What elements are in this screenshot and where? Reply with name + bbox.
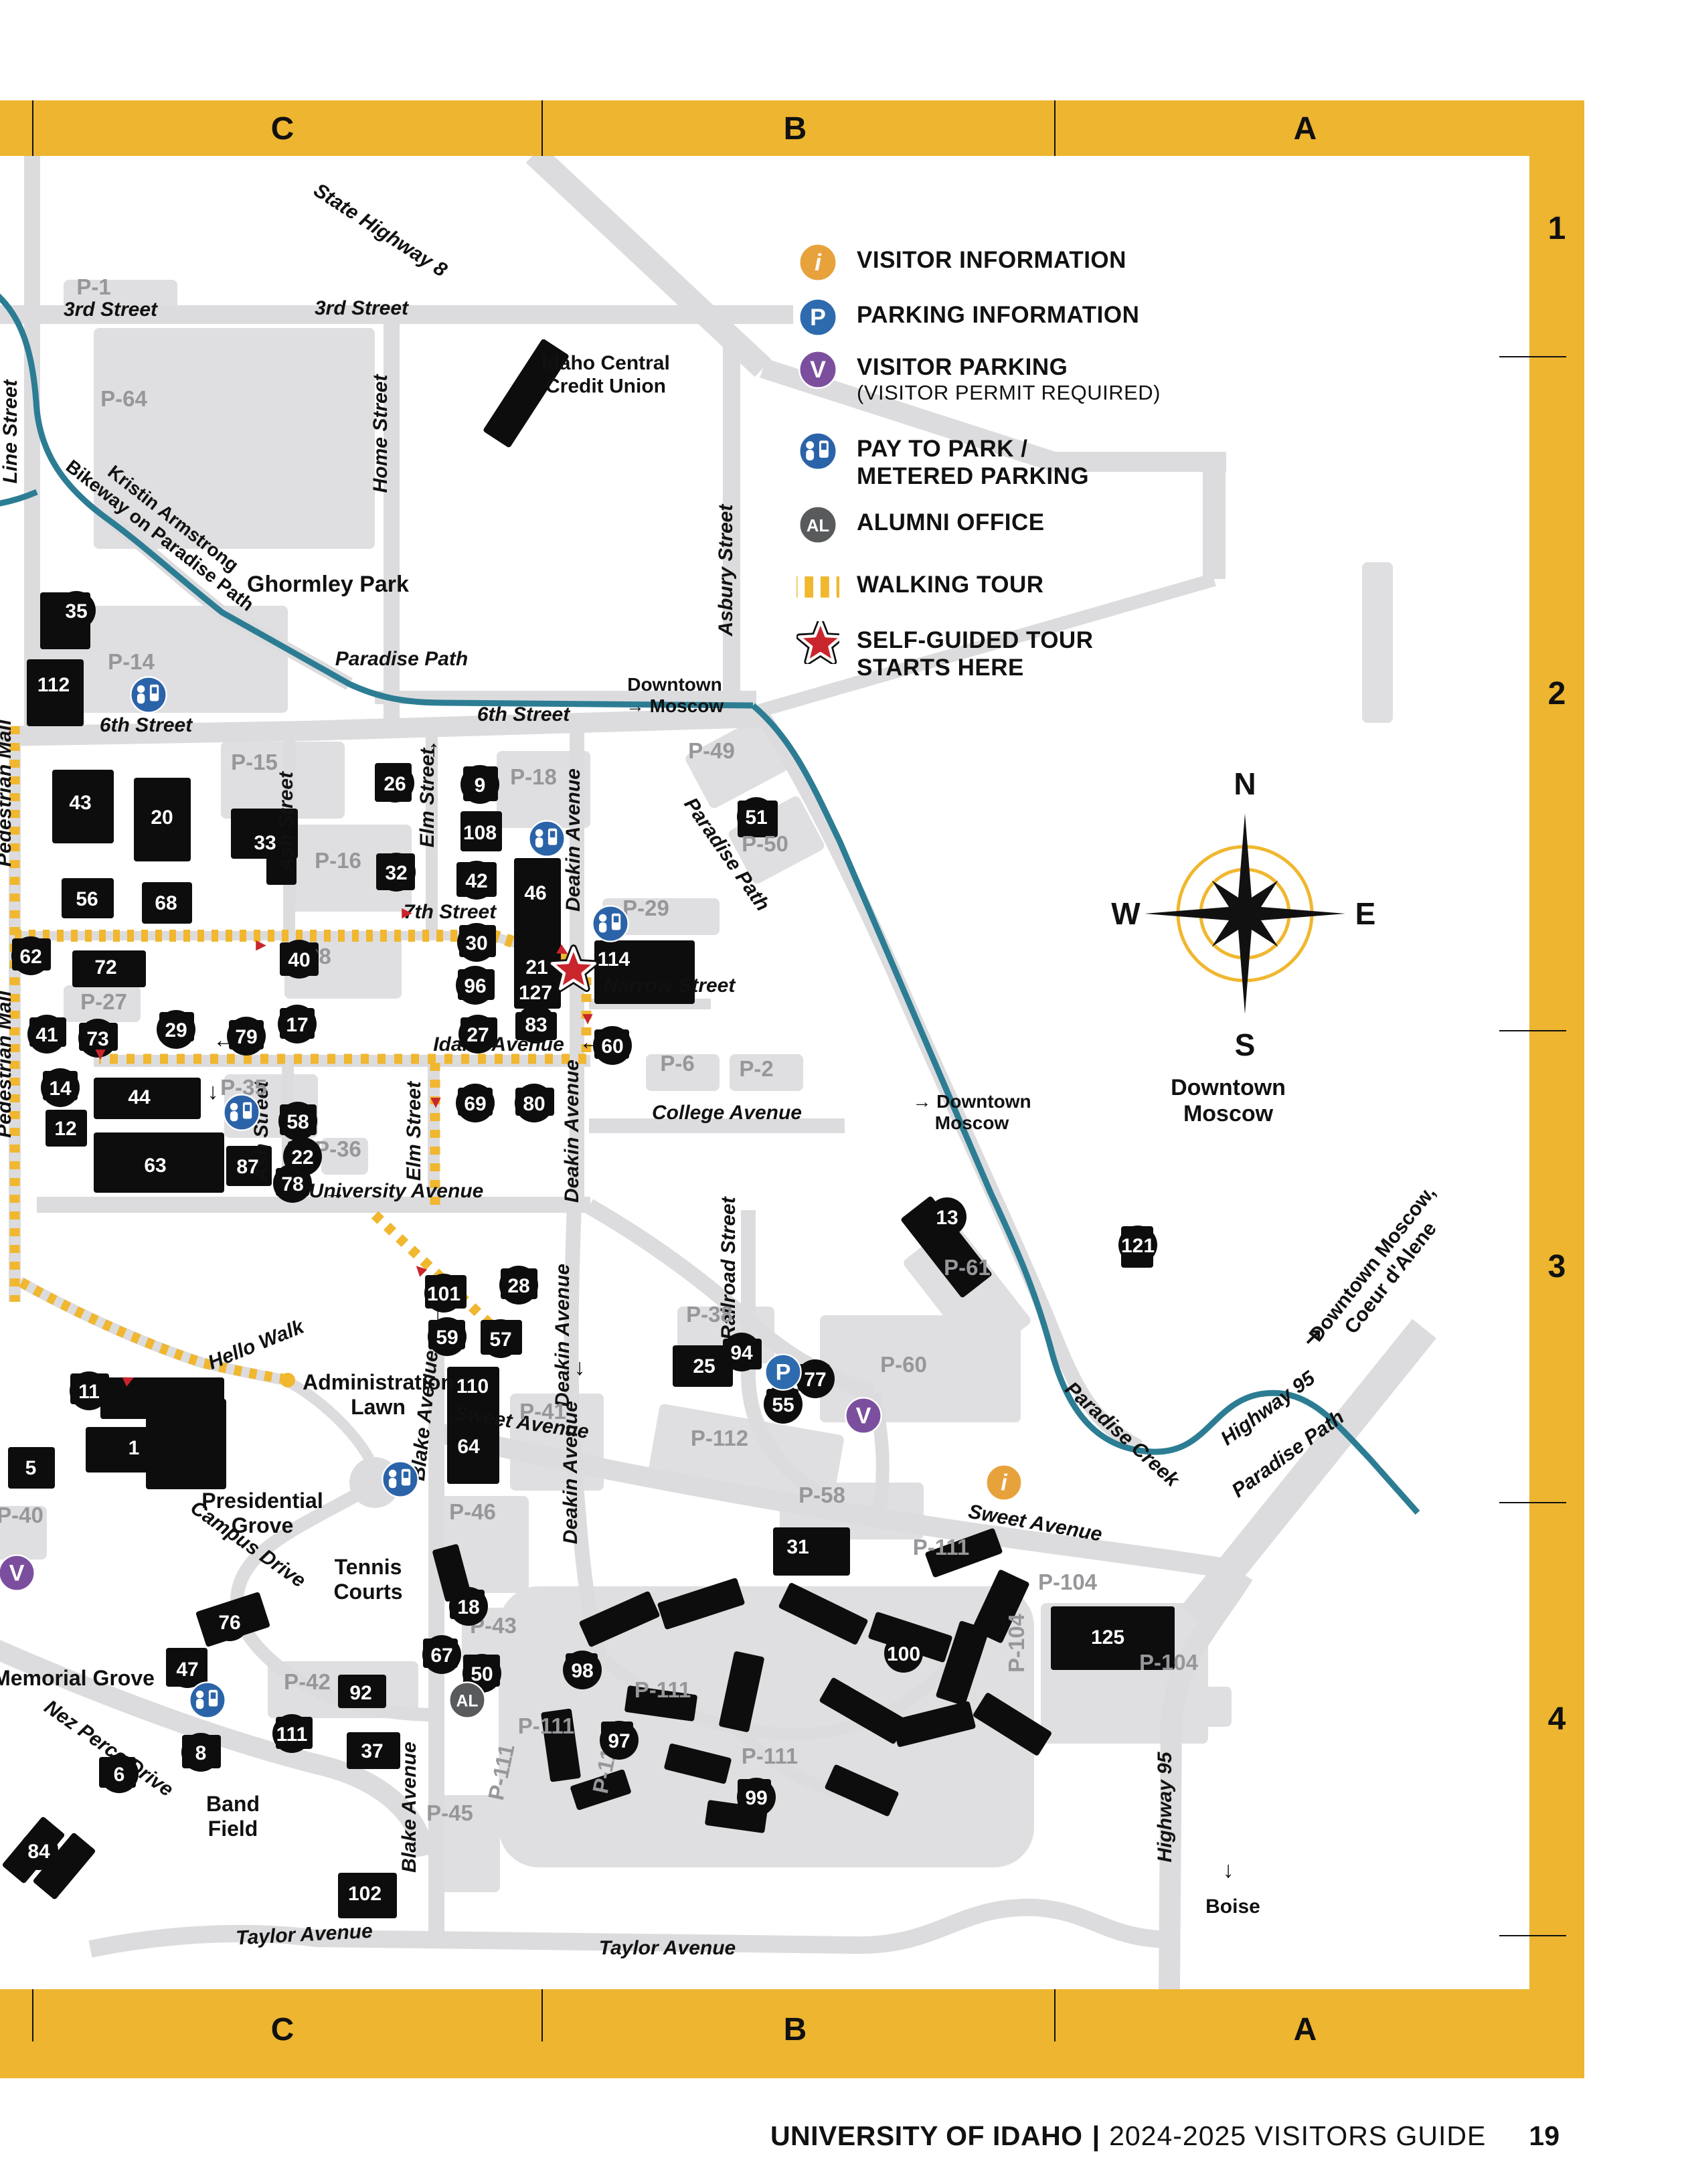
tour-dash	[837, 576, 839, 598]
grid-row-4: 4	[1548, 1701, 1566, 1737]
parking-lot-label: P-112	[691, 1426, 748, 1450]
street-label: 3rd Street	[315, 297, 410, 319]
area-label: Ghormley Park	[247, 572, 409, 597]
building-number: 99	[745, 1787, 767, 1809]
metered-parking-icon	[592, 906, 628, 941]
building-marker: 42	[457, 861, 496, 900]
building-marker: 51	[737, 797, 776, 836]
building-marker: 9	[460, 765, 499, 804]
street-label: Elm Street	[403, 1080, 425, 1181]
person-body	[389, 1478, 396, 1488]
footer-separator: |	[1092, 2120, 1100, 2152]
building-number: 5	[25, 1457, 37, 1479]
area-label: TennisCourts	[333, 1555, 402, 1604]
building-number: 67	[430, 1645, 452, 1667]
building-marker: 83	[517, 1005, 556, 1043]
building-marker: 33	[254, 832, 276, 854]
person-body	[806, 450, 814, 460]
grid-col-b-bottom: B	[784, 2012, 807, 2047]
direction-arrow: ↓	[511, 851, 523, 877]
street-label: Line Street	[0, 378, 21, 483]
direction-arrow: ↓	[574, 1355, 586, 1380]
area-label: Memorial Grove	[0, 1666, 155, 1690]
person-body	[535, 837, 543, 847]
building-number: 59	[436, 1327, 458, 1349]
building-number: 100	[887, 1643, 920, 1665]
building-marker: 22	[283, 1137, 322, 1176]
icon-glyph: V	[810, 356, 826, 383]
direction-arrow: →	[323, 1179, 346, 1205]
building-marker: 96	[456, 966, 495, 1005]
compass-n: N	[1234, 766, 1256, 801]
building-number: 101	[427, 1283, 460, 1305]
person-body	[137, 693, 145, 703]
building-marker: 102	[348, 1883, 382, 1905]
parking-lot-label: P-50	[742, 831, 788, 856]
building-marker: 101	[424, 1274, 463, 1313]
building-marker: 94	[722, 1333, 761, 1371]
metered-parking-icon	[799, 432, 836, 469]
building-marker: 76	[210, 1602, 249, 1641]
building-marker: 58	[278, 1102, 317, 1141]
building-number: 87	[236, 1156, 258, 1178]
building-number: 57	[489, 1329, 511, 1351]
street-label: Ash Street	[275, 770, 297, 873]
building-number: 17	[286, 1014, 308, 1036]
area-label: BandField	[206, 1792, 260, 1841]
tour-arrow: ▼	[579, 1008, 596, 1028]
icon-glyph: AL	[807, 517, 829, 535]
person-head	[230, 1103, 238, 1110]
icon-circle	[799, 432, 836, 469]
legend-item-vinfo: iVISITOR INFORMATION	[796, 241, 1126, 284]
legend-item-alumni: ALALUMNI OFFICE	[796, 503, 1045, 546]
direction-arrow: ↓	[1223, 1857, 1234, 1883]
building-marker: 47	[168, 1649, 207, 1688]
icon-circle	[189, 1682, 225, 1717]
legend-icon-star	[796, 621, 839, 664]
building-number: 9	[475, 774, 486, 796]
building-marker: 87	[236, 1156, 258, 1178]
building-marker: 127	[519, 982, 552, 1004]
direction-arrow: ↗	[1304, 1324, 1323, 1349]
building-number: 31	[786, 1536, 809, 1558]
building-number: 1	[129, 1437, 140, 1459]
icon-glyph: V	[9, 1560, 25, 1586]
building-marker: 64	[457, 1436, 480, 1458]
metered-parking-icon	[131, 677, 166, 712]
building-number: 58	[286, 1111, 309, 1133]
building-marker: 112	[34, 665, 73, 703]
legend-icon-pinfo: P	[796, 296, 839, 339]
building-marker: 72	[94, 956, 116, 979]
building-number: 96	[464, 975, 486, 997]
person-head	[389, 1470, 396, 1477]
area-label: → DowntownMoscow	[912, 1091, 1031, 1133]
building-marker: 17	[278, 1005, 317, 1043]
parking-lot-label: P-111	[635, 1677, 691, 1702]
alumni-office-icon: AL	[799, 506, 836, 543]
building-number: 40	[288, 949, 310, 971]
street-label: Deakin Avenue	[562, 768, 584, 912]
metered-parking-icon	[224, 1094, 259, 1130]
building-number: 18	[457, 1596, 479, 1618]
meter-screen	[821, 443, 827, 450]
building-marker: 6	[100, 1754, 139, 1793]
building-number: 114	[598, 948, 630, 971]
visitor-info-icon: i	[799, 244, 836, 280]
building-number: 68	[155, 892, 177, 914]
street-label: Deakin Avenue	[552, 1264, 574, 1407]
building-marker: 63	[144, 1155, 166, 1177]
building-number: 102	[348, 1883, 382, 1905]
metered-parking-icon	[382, 1461, 418, 1497]
compass-star	[1145, 813, 1345, 1014]
icon-circle	[382, 1461, 418, 1497]
building-marker: 30	[457, 923, 496, 962]
person-head	[137, 685, 145, 693]
direction-arrow: ↑	[428, 736, 440, 762]
parking-lot-label: P-111	[742, 1744, 798, 1768]
icon-circle	[592, 906, 628, 941]
building-number: 21	[525, 956, 548, 979]
building-number: 33	[254, 832, 276, 854]
building-number: 13	[936, 1207, 958, 1229]
building-marker: 100	[884, 1634, 923, 1673]
building-marker: 84	[19, 1831, 58, 1870]
person-head	[599, 914, 606, 922]
compass-e: E	[1355, 896, 1376, 931]
icon-circle	[131, 677, 166, 712]
building-number: 92	[349, 1682, 371, 1704]
parking-lot-label: P-38	[686, 1302, 733, 1327]
grid-col-c-bottom: C	[271, 2012, 295, 2047]
legend-item-pinfo: PPARKING INFORMATION	[796, 296, 1139, 339]
building-number: 14	[49, 1078, 72, 1100]
parking-lot-label: P-64	[100, 386, 147, 411]
street-label: Paradise Creek	[1061, 1377, 1184, 1491]
footer-page-number: 19	[1529, 2120, 1560, 2152]
building-number: 46	[524, 882, 546, 904]
legend-icon-alumni: AL	[796, 503, 839, 546]
building-marker: 80	[515, 1084, 554, 1122]
street-label: Pedestrian Mall	[0, 990, 15, 1138]
grid-col-a-bottom: A	[1294, 2012, 1317, 2047]
street-label: Taylor Avenue	[599, 1937, 736, 1959]
building-marker: 37	[361, 1740, 383, 1762]
building-number: 62	[19, 946, 41, 968]
street-label: Highway 95	[1154, 1751, 1176, 1862]
building-number: 121	[1121, 1235, 1155, 1257]
building-marker: 21	[525, 956, 548, 979]
parking-lot-label: P-104	[1038, 1570, 1098, 1594]
tour-dash	[821, 576, 829, 598]
tour-arrow: ►	[252, 934, 270, 954]
street-label: 7th Street	[404, 901, 497, 923]
person-body	[599, 922, 606, 932]
area-label: DowntownMoscow	[1171, 1075, 1286, 1126]
grid-row-1: 1	[1548, 211, 1566, 246]
metered-parking-icon	[189, 1682, 225, 1717]
building-number: 112	[37, 674, 70, 696]
legend-icon-vinfo: i	[796, 241, 839, 284]
building-marker: 110	[456, 1375, 489, 1398]
parking-lot-label: P-27	[80, 989, 127, 1014]
tour-arrow: ▼	[427, 1092, 444, 1112]
building-number: 80	[523, 1093, 545, 1115]
building-number: 56	[76, 888, 98, 910]
building-number: 69	[464, 1093, 486, 1115]
street-label: Pedestrian Mall	[0, 719, 15, 867]
building-marker: 57	[481, 1319, 520, 1358]
building-number: 47	[176, 1659, 198, 1681]
parking-lot-label: P-41	[519, 1399, 566, 1424]
building-marker: 35	[57, 591, 96, 630]
direction-arrow: ←	[213, 1027, 236, 1053]
parking-lot-label: P-49	[688, 738, 735, 763]
building-marker: 92	[349, 1682, 371, 1704]
building-number: 84	[27, 1841, 50, 1863]
footer-brand: UNIVERSITY OF IDAHO	[770, 2120, 1083, 2152]
grid-col-a-top: A	[1294, 111, 1317, 147]
parking-lot-label: P-60	[880, 1352, 927, 1377]
building-number: 35	[65, 600, 87, 622]
building-number: 94	[730, 1342, 753, 1364]
parking-lot-label: P-14	[108, 649, 155, 674]
building-marker: 12	[54, 1118, 76, 1140]
building-marker: 43	[69, 792, 91, 814]
building-marker: 13	[928, 1197, 966, 1236]
building-number: 43	[69, 792, 91, 814]
building-marker: 18	[449, 1587, 488, 1626]
building-number: 11	[78, 1381, 100, 1403]
parking-lot-label: P-58	[798, 1483, 845, 1507]
building-marker: 29	[157, 1010, 195, 1049]
building-number: 28	[507, 1275, 529, 1297]
hello-walk-endpoint	[280, 1373, 295, 1388]
legend-label: WALKING TOUR	[857, 566, 1044, 598]
parking-lot-label: P-15	[231, 750, 278, 774]
building-marker: 125	[1091, 1626, 1124, 1649]
street-label: College Avenue	[652, 1102, 802, 1124]
visitor-info-icon: i	[986, 1464, 1021, 1500]
legend-icon-meter	[796, 430, 839, 473]
building-number: 20	[151, 807, 173, 829]
parking-lot-label: P-42	[284, 1669, 331, 1694]
street-label: Blake Avenue	[398, 1742, 420, 1873]
parking-lot-label: P-111	[913, 1535, 969, 1560]
building-marker: 121	[1118, 1226, 1157, 1264]
building-marker: 27	[458, 1015, 497, 1054]
legend-item-tour: WALKING TOUR	[796, 566, 1044, 608]
alumni-office-icon: AL	[449, 1682, 485, 1717]
person-body	[230, 1111, 238, 1121]
parking-lot-label: P-40	[0, 1503, 44, 1527]
building-number: 77	[804, 1369, 826, 1391]
icon-circle	[224, 1094, 259, 1130]
area-label: Downtown→ Moscow	[626, 674, 724, 716]
parking-lot-label: P-45	[426, 1800, 473, 1825]
meter-screen	[404, 1472, 409, 1479]
legend-icon-tour	[796, 566, 839, 608]
parking-info-icon: P	[799, 299, 836, 335]
building-marker: 77	[796, 1359, 835, 1398]
building-number: 79	[235, 1026, 257, 1048]
meter-screen	[550, 831, 556, 838]
building-marker: 5	[25, 1457, 37, 1479]
building-marker: 67	[422, 1635, 461, 1674]
icon-glyph: P	[776, 1359, 791, 1385]
building-marker: 68	[155, 892, 177, 914]
building-marker: 20	[151, 807, 173, 829]
building-marker: 14	[41, 1068, 80, 1107]
building-marker: 25	[693, 1355, 715, 1377]
icon-glyph: i	[1001, 1470, 1008, 1495]
parking-lot-label: P-2	[739, 1056, 773, 1081]
building-marker: 114	[598, 948, 630, 971]
area-label: Boise	[1205, 1896, 1260, 1918]
building-marker: 44	[128, 1086, 151, 1108]
building-number: 42	[465, 870, 487, 892]
area-label: Downtown Moscow,Coeur d'Alene	[1305, 1181, 1458, 1360]
building-number: 8	[195, 1742, 207, 1764]
legend-label: VISITOR INFORMATION	[857, 241, 1126, 274]
building-number: 55	[772, 1394, 794, 1416]
legend-label: ALUMNI OFFICE	[857, 503, 1045, 536]
icon-glyph: P	[810, 304, 826, 331]
parking-lot-label: P-29	[622, 896, 669, 920]
tour-dash	[805, 576, 813, 598]
parking-lot	[1362, 562, 1393, 723]
building-number: 37	[361, 1740, 383, 1762]
building-number: 60	[601, 1035, 623, 1058]
street-label: Asbury Street	[715, 503, 737, 637]
building-number: 27	[467, 1024, 489, 1046]
icon-circle	[529, 821, 564, 856]
building-marker: 40	[280, 940, 319, 979]
building-number: 26	[384, 773, 406, 795]
building-marker: 32	[377, 853, 416, 892]
person-head	[196, 1691, 203, 1698]
street-label: Deakin Avenue	[561, 1060, 583, 1203]
meter-screen	[152, 687, 157, 694]
building-shape	[773, 1527, 850, 1576]
street-label: Elm Street	[416, 747, 438, 847]
building-number: 12	[54, 1118, 76, 1140]
visitor-parking-icon: V	[845, 1398, 881, 1433]
building-number: 25	[693, 1355, 715, 1377]
meter-screen	[211, 1693, 216, 1699]
building-marker: 98	[563, 1651, 602, 1689]
building-number: 97	[608, 1730, 630, 1752]
building-marker: 8	[181, 1733, 220, 1772]
building-marker: 28	[499, 1266, 538, 1305]
parking-lot-label: P-46	[449, 1499, 496, 1524]
direction-arrow: ↓	[432, 1304, 444, 1329]
parking-info-icon: P	[765, 1354, 801, 1390]
person-head	[535, 829, 543, 837]
parking-lot-label: P-18	[510, 764, 557, 789]
legend-label: PARKING INFORMATION	[857, 296, 1139, 329]
street-label: Paradise Path	[335, 648, 468, 670]
legend-item-meter: PAY TO PARK /METERED PARKING	[796, 430, 1089, 491]
building-marker: 11	[70, 1371, 108, 1410]
page-footer: UNIVERSITY OF IDAHO | 2024-2025 VISITORS…	[0, 2120, 1560, 2152]
building-number: 127	[519, 982, 552, 1004]
grid-col-c-top: C	[271, 111, 295, 147]
tour-start-star-icon	[799, 622, 839, 662]
building-number: 98	[571, 1660, 593, 1682]
parking-lot-label: P-61	[944, 1255, 991, 1280]
icon-glyph: V	[856, 1403, 871, 1428]
legend-label: VISITOR PARKING(VISITOR PERMIT REQUIRED)	[857, 348, 1161, 406]
building-marker: 1	[129, 1437, 140, 1459]
grid-col-b-top: B	[784, 111, 807, 147]
star-fill	[799, 622, 839, 662]
building-shape	[86, 1427, 151, 1473]
walking-tour-swatch	[796, 576, 839, 598]
building-number: 30	[465, 932, 487, 954]
building-number: 32	[385, 862, 407, 884]
street-label: 6th Street	[100, 714, 193, 736]
street-label: Hello Walk	[205, 1315, 308, 1374]
tour-arrow: ►	[398, 902, 416, 922]
visitors-guide-map-page: State Highway 83rd Street3rd StreetLine …	[0, 0, 1682, 2184]
building-number: 22	[291, 1147, 313, 1169]
legend-item-vpark: VVISITOR PARKING(VISITOR PERMIT REQUIRED…	[796, 348, 1161, 406]
building-marker: 108	[460, 813, 499, 851]
parking-lot-label: P-104	[1004, 1613, 1029, 1673]
visitor-parking-icon: V	[799, 351, 836, 388]
building-shape	[146, 1399, 226, 1489]
building-number: 64	[457, 1436, 480, 1458]
building-number: 125	[1091, 1626, 1124, 1649]
building-marker: 56	[76, 888, 98, 910]
parking-lot-label: P-6	[660, 1051, 694, 1076]
direction-arrow: ↓	[207, 1079, 219, 1104]
icon-glyph: i	[815, 249, 822, 276]
building-number: 72	[94, 956, 116, 979]
visitor-parking-icon: V	[0, 1555, 35, 1590]
metered-parking-icon	[529, 821, 564, 856]
building-number: 78	[281, 1173, 303, 1195]
building-marker: 26	[375, 764, 414, 803]
parking-lot-label: P-1	[76, 274, 110, 299]
parking-lot-label: P-104	[1139, 1650, 1199, 1675]
building-number: 111	[276, 1724, 308, 1746]
parking-lot-label: P-16	[315, 848, 361, 873]
icon-glyph: AL	[456, 1693, 479, 1711]
street-label: Home Street	[369, 373, 392, 493]
direction-arrow: ←	[579, 1029, 602, 1055]
building-number: 50	[471, 1663, 493, 1685]
building-number: 63	[144, 1155, 166, 1177]
building-number: 29	[165, 1019, 187, 1041]
building-number: 110	[456, 1375, 489, 1398]
building-number: 76	[218, 1612, 240, 1634]
building-number: 41	[35, 1024, 58, 1046]
building-marker: 99	[737, 1778, 776, 1817]
building-number: 6	[114, 1764, 125, 1786]
meter-screen	[614, 916, 619, 923]
legend-label: PAY TO PARK /METERED PARKING	[857, 430, 1089, 491]
legend-icon-vpark: V	[796, 348, 839, 391]
area-label: Idaho CentralCredit Union	[541, 352, 670, 398]
street-label: Narrow Street	[604, 975, 737, 997]
grid-row-2: 2	[1548, 676, 1566, 711]
building-marker: 97	[600, 1721, 639, 1760]
compass-rose: N S W E	[1111, 766, 1375, 1062]
